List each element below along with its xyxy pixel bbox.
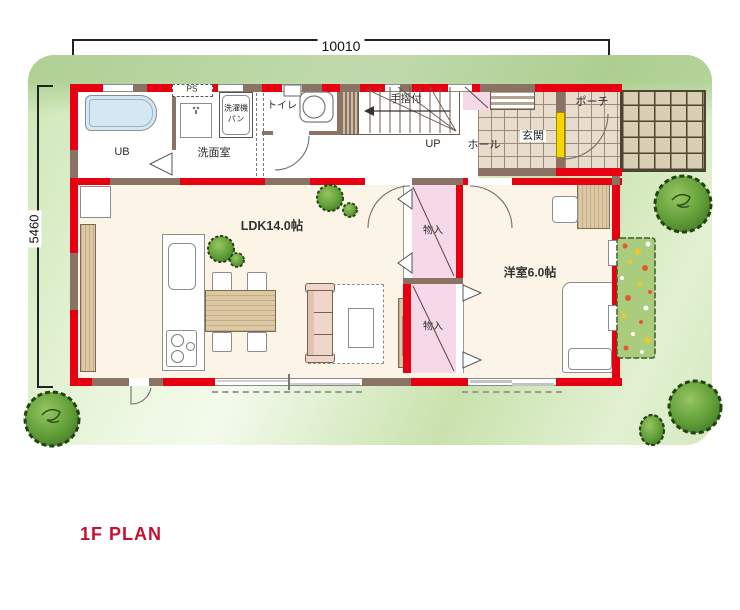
wall-segment [340,84,360,92]
wall-segment [480,84,535,92]
label-western-room: 洋室6.0帖 [504,266,557,279]
wall-segment [149,378,163,386]
dimension-tick [72,39,74,55]
label-storage-lower: 物入 [423,322,443,333]
window [448,84,472,92]
door-opening [468,178,512,185]
coffee-table [348,308,374,348]
wall-segment [310,178,365,185]
label-ps: PS [187,86,198,95]
wall-segment [612,328,620,378]
label-ldk: LDK14.0帖 [241,220,304,234]
wall-segment [362,378,411,386]
window-pane [470,380,512,383]
wall-segment [412,84,448,92]
wall-segment [400,84,412,92]
label-washer-2: パン [228,116,244,125]
wall-segment [265,178,310,185]
sliding-window [468,378,556,386]
window-pane [289,383,360,385]
cooktop [166,330,197,367]
eaves-line [212,391,362,393]
wall-segment [110,178,180,185]
front-door-leaf [556,112,565,158]
dimension-height-label: 5460 [27,211,42,248]
porch-bottom-wall [556,168,622,176]
burner [186,342,195,351]
wall-segment [456,185,463,278]
dining-table [205,290,276,332]
label-storage-upper: 物入 [423,226,443,237]
side-counter [80,224,96,372]
window-pane [512,383,554,386]
desk [577,181,610,229]
stair-closet [338,86,360,135]
wall-segment [512,178,622,185]
wall-segment [411,378,468,386]
door-opening [365,178,412,185]
wall-segment [70,183,78,253]
label-ub: UB [114,146,129,158]
wall-segment [180,178,265,185]
chair [247,272,267,292]
pillow [568,348,612,370]
bifold-door [456,284,464,373]
window-sill [608,240,624,266]
door-opening [129,378,149,386]
dimension-tick [37,386,53,388]
wall-segment [147,84,172,92]
wall-segment [612,185,620,242]
window-pane [217,380,288,382]
window-sill [608,305,624,331]
wall-segment [403,278,463,284]
plan-title: 1F PLAN [80,524,162,545]
burner [171,334,184,347]
wall-segment [403,284,411,373]
kitchen-sink [168,243,196,290]
window [218,84,243,92]
label-up: UP [425,138,440,150]
dimension-tick [608,39,610,55]
sofa-back [308,291,314,355]
label-toilet: トイレ [267,101,297,112]
chair [212,272,232,292]
wall-segment [556,378,622,386]
floor-plan: 10010 5460 [0,0,740,610]
window-center-mark [288,374,290,390]
window-wall [70,253,78,310]
wall-segment [92,378,129,386]
partition [262,131,273,135]
chair [247,332,267,352]
label-senmen: 洗面室 [198,147,231,159]
dimension-tick [37,85,53,87]
bathtub-inner [89,99,153,127]
eaves-line [462,391,562,393]
label-hall: ホール [468,139,501,151]
wall-segment [472,84,480,92]
wall-segment [302,84,322,92]
wall-segment [412,178,463,185]
label-genkan: 玄関 [520,130,546,142]
wall-segment [243,84,262,92]
wall-segment [612,176,620,185]
label-handrail: 手摺付 [388,94,424,106]
dimension-width-label: 10010 [318,38,365,54]
sofa [307,290,333,356]
wall-segment [262,84,282,92]
wall-segment [70,310,78,386]
burner [171,350,184,363]
desk-chair [552,196,578,223]
genkan-bottom-wall [478,168,556,176]
wall-segment [163,378,215,386]
wall-segment [535,84,622,92]
wall-segment [133,84,147,92]
washbasin [180,103,212,138]
wall-segment [322,84,340,92]
approach-tile-path [620,90,706,172]
chair [212,332,232,352]
bathtub [85,95,157,131]
wall-segment [70,378,92,386]
partition [309,131,341,135]
window [103,84,133,92]
wall-segment [360,84,385,92]
wall-segment [612,263,620,307]
label-porch: ポーチ [576,96,609,108]
wall-segment [70,178,110,185]
partition [337,88,341,133]
bifold-door [403,185,412,278]
window [385,84,400,92]
wall-segment [70,84,78,150]
window [282,84,302,92]
refrigerator [80,186,111,218]
label-washer-1: 洗濯機 [224,105,248,114]
partition [172,88,176,150]
